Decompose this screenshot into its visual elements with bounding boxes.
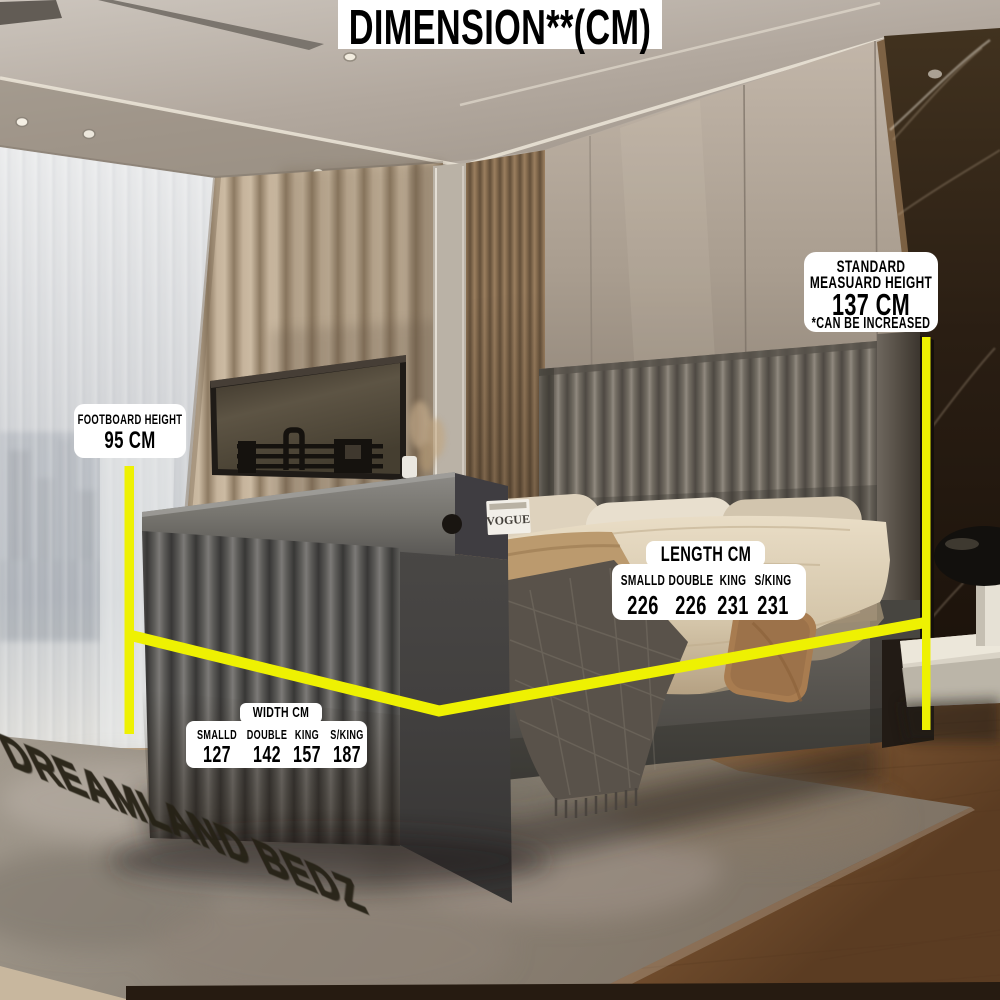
svg-text:VOGUE: VOGUE [486,512,530,528]
